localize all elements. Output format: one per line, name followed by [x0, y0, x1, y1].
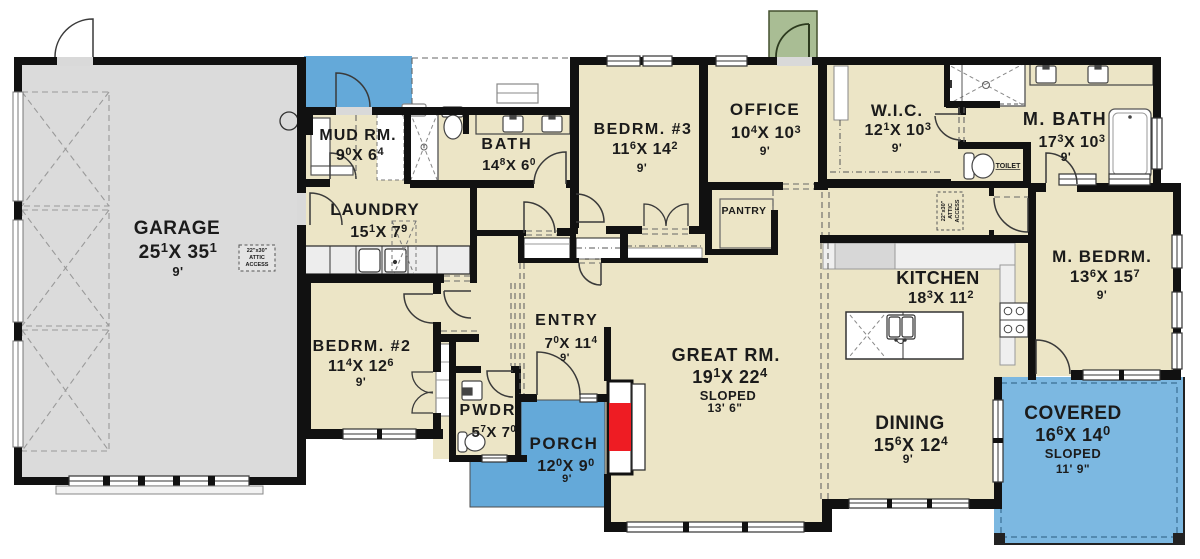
- svg-text:PORCH: PORCH: [530, 434, 599, 453]
- svg-text:ATTIC: ATTIC: [948, 203, 954, 219]
- svg-text:SLOPED: SLOPED: [1045, 446, 1101, 461]
- svg-text:57X 70: 57X 70: [472, 424, 517, 441]
- svg-text:22"x30": 22"x30": [941, 200, 947, 221]
- svg-text:114X 126: 114X 126: [328, 357, 394, 375]
- svg-text:11' 9": 11' 9": [1056, 462, 1090, 476]
- svg-text:9': 9': [356, 375, 367, 389]
- svg-text:M. BATH: M. BATH: [1023, 109, 1107, 129]
- svg-text:251X 351: 251X 351: [139, 240, 218, 263]
- svg-text:ATTIC: ATTIC: [249, 255, 265, 261]
- svg-text:9': 9': [903, 452, 914, 466]
- svg-text:9': 9': [892, 141, 903, 155]
- svg-text:LAUNDRY: LAUNDRY: [330, 200, 419, 219]
- svg-text:9': 9': [760, 144, 771, 158]
- svg-text:90X 64: 90X 64: [336, 146, 385, 164]
- svg-text:22"x30": 22"x30": [247, 248, 268, 254]
- svg-text:9': 9': [1097, 288, 1108, 302]
- svg-text:191X 224: 191X 224: [692, 365, 768, 387]
- svg-text:W.I.C.: W.I.C.: [871, 101, 923, 120]
- svg-text:9': 9': [172, 264, 183, 279]
- svg-text:13' 6": 13' 6": [708, 401, 743, 415]
- svg-text:9': 9': [1061, 150, 1072, 164]
- svg-text:BEDRM. #2: BEDRM. #2: [313, 338, 412, 355]
- svg-text:GARAGE: GARAGE: [134, 218, 220, 239]
- svg-text:9': 9': [562, 473, 572, 485]
- svg-text:TOILET: TOILET: [996, 163, 1021, 170]
- svg-text:136X 157: 136X 157: [1070, 267, 1140, 286]
- svg-text:9': 9': [560, 352, 570, 364]
- svg-text:121X 103: 121X 103: [865, 121, 932, 139]
- svg-text:BEDRM. #3: BEDRM. #3: [594, 121, 693, 138]
- svg-text:166X 140: 166X 140: [1035, 423, 1111, 445]
- svg-text:GREAT RM.: GREAT RM.: [672, 345, 781, 365]
- svg-text:173X 103: 173X 103: [1039, 133, 1106, 151]
- svg-text:COVERED: COVERED: [1024, 403, 1121, 424]
- svg-text:M. BEDRM.: M. BEDRM.: [1052, 247, 1152, 266]
- svg-text:148X 60: 148X 60: [482, 157, 536, 174]
- svg-text:MUD RM.: MUD RM.: [319, 127, 396, 144]
- svg-text:PANTRY: PANTRY: [722, 205, 767, 217]
- svg-text:DINING: DINING: [875, 413, 945, 434]
- svg-text:183X 112: 183X 112: [908, 289, 974, 307]
- svg-text:BATH: BATH: [481, 136, 532, 153]
- svg-text:ACCESS: ACCESS: [246, 262, 269, 268]
- svg-text:ACCESS: ACCESS: [955, 199, 961, 222]
- svg-text:104X 103: 104X 103: [731, 123, 801, 142]
- svg-text:70X 114: 70X 114: [545, 335, 598, 352]
- svg-text:ENTRY: ENTRY: [535, 312, 599, 329]
- svg-text:116X 142: 116X 142: [612, 140, 678, 158]
- svg-text:151X 79: 151X 79: [350, 223, 408, 241]
- svg-text:OFFICE: OFFICE: [730, 100, 800, 119]
- svg-text:KITCHEN: KITCHEN: [896, 268, 980, 288]
- svg-text:9': 9': [637, 161, 648, 175]
- svg-text:PWDR: PWDR: [460, 402, 517, 419]
